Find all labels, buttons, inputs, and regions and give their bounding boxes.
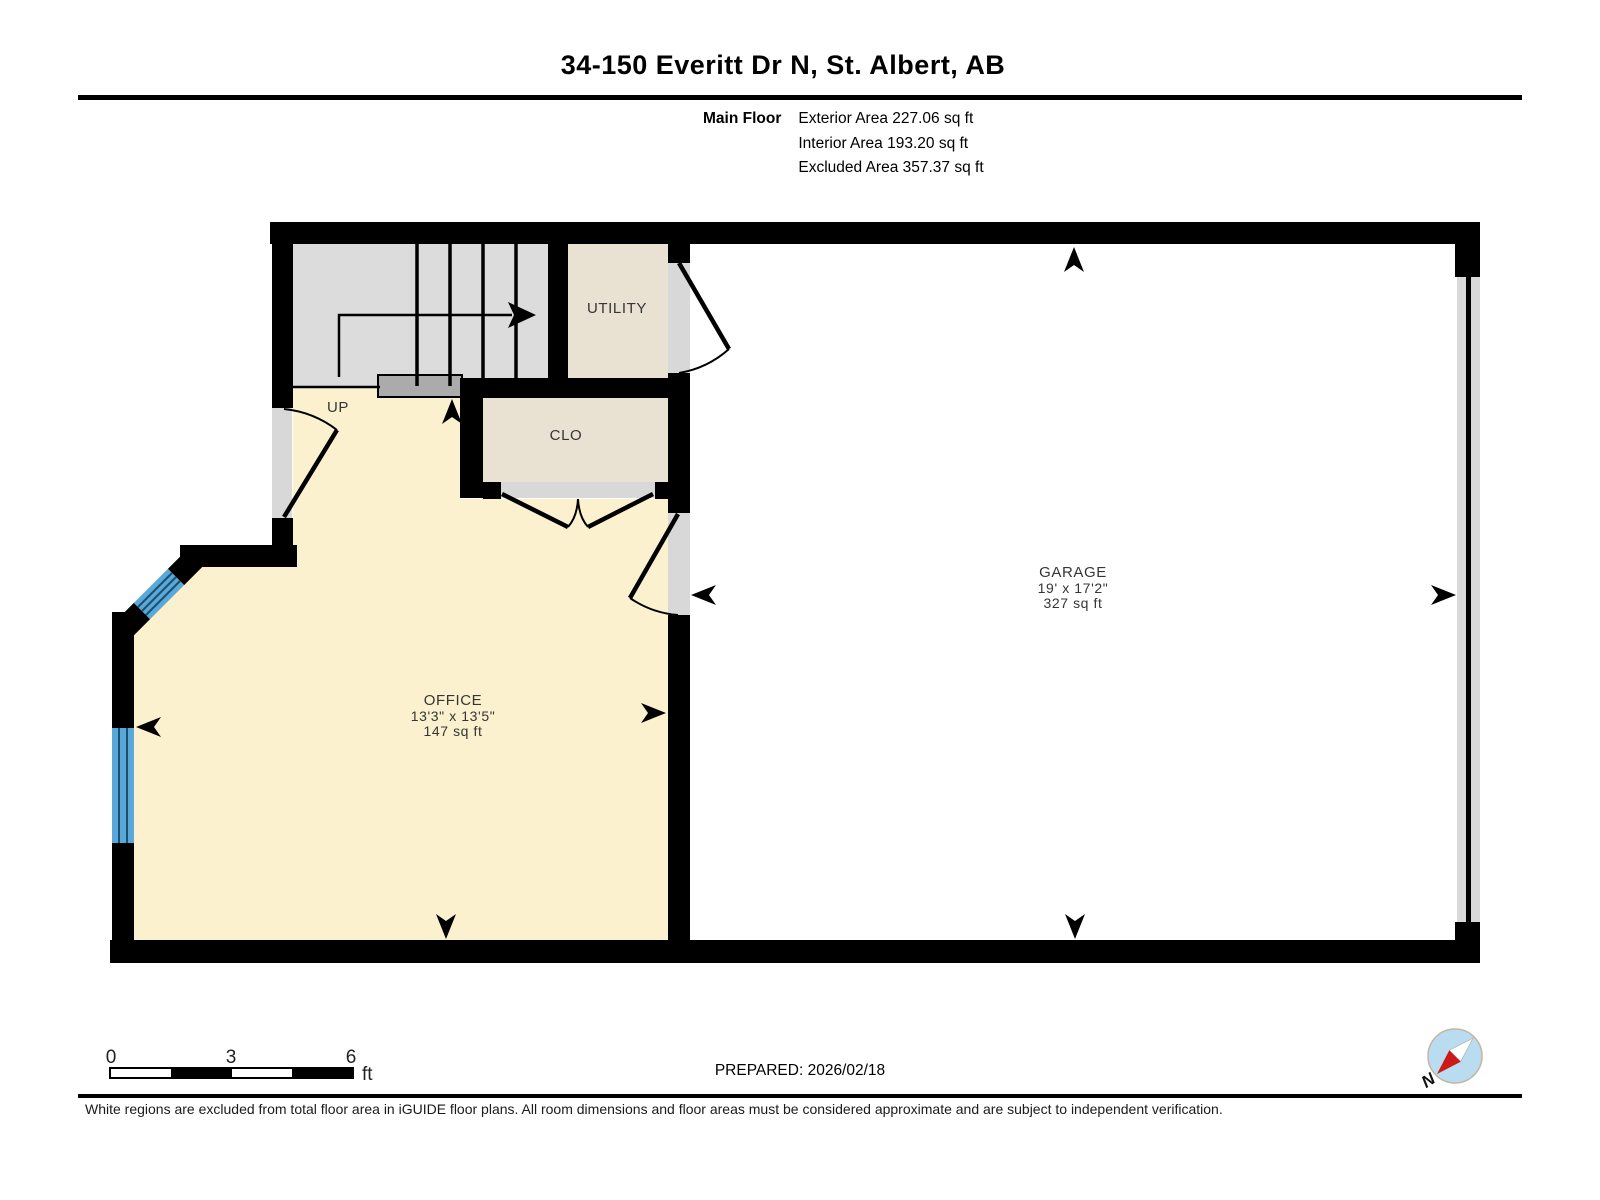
wall-stair-left: [272, 222, 293, 408]
scale-tick-3: 3: [226, 1047, 237, 1068]
garage-depth-arrow-up-icon: [1064, 247, 1084, 272]
wall-divider-2: [668, 373, 690, 513]
wall-bottom: [110, 940, 1480, 963]
wall-closet-top: [460, 378, 688, 398]
wall-stair-utility: [548, 244, 568, 378]
closet-door-opening: [500, 482, 655, 498]
wall-divider-1: [668, 244, 690, 263]
left-window: [112, 728, 134, 843]
compass: N: [1418, 1029, 1482, 1092]
floorplan-page: 34-150 Everitt Dr N, St. Albert, AB Main…: [0, 0, 1600, 1200]
office-label: OFFICE: [424, 692, 483, 709]
floor-areas: [131, 244, 668, 941]
disclaimer-text: White regions are excluded from total fl…: [85, 1101, 1285, 1117]
wall-closet-left: [460, 398, 483, 498]
garage-dimensions: 19' x 17'2": [1038, 580, 1109, 596]
scale-bar-segment: [171, 1068, 232, 1078]
overhead-garage-door-line: [1466, 277, 1471, 922]
wall-closet-jamb-left: [483, 482, 501, 499]
scale-unit: ft: [362, 1064, 373, 1085]
office-area: 147 sq ft: [423, 723, 482, 739]
wall-corner-bottom-right: [1455, 922, 1480, 942]
prepared-date: PREPARED: 2026/02/18: [650, 1062, 950, 1080]
garage-width-arrow-right-icon: [1431, 585, 1456, 605]
wall-top: [270, 222, 1480, 244]
closet-label: CLO: [550, 427, 583, 444]
garage-area: 327 sq ft: [1043, 595, 1102, 611]
wall-divider-3: [668, 615, 690, 940]
up-label: UP: [327, 399, 349, 416]
wall-diagonal-upper: [176, 556, 197, 577]
garage-label: GARAGE: [1039, 564, 1107, 581]
wall-diagonal-lower: [121, 611, 142, 632]
garage-depth-arrow-down-icon: [1065, 914, 1085, 939]
footer-divider: [78, 1094, 1522, 1098]
scale-bar: 0 3 6 ft: [106, 1047, 374, 1085]
scale-bar-segment: [292, 1068, 353, 1078]
wall-corner-top-right: [1455, 244, 1480, 277]
garage-width-arrow-left-icon: [691, 585, 716, 605]
entry-door-opening: [272, 408, 292, 518]
scale-tick-0: 0: [106, 1047, 117, 1068]
scale-tick-6: 6: [346, 1047, 357, 1068]
floorplan-drawing: UTILITY CLO UP OFFICE 13'3" x 13'5" 147 …: [0, 0, 1600, 1200]
office-dimensions: 13'3" x 13'5": [411, 708, 496, 724]
utility-label: UTILITY: [587, 300, 647, 317]
